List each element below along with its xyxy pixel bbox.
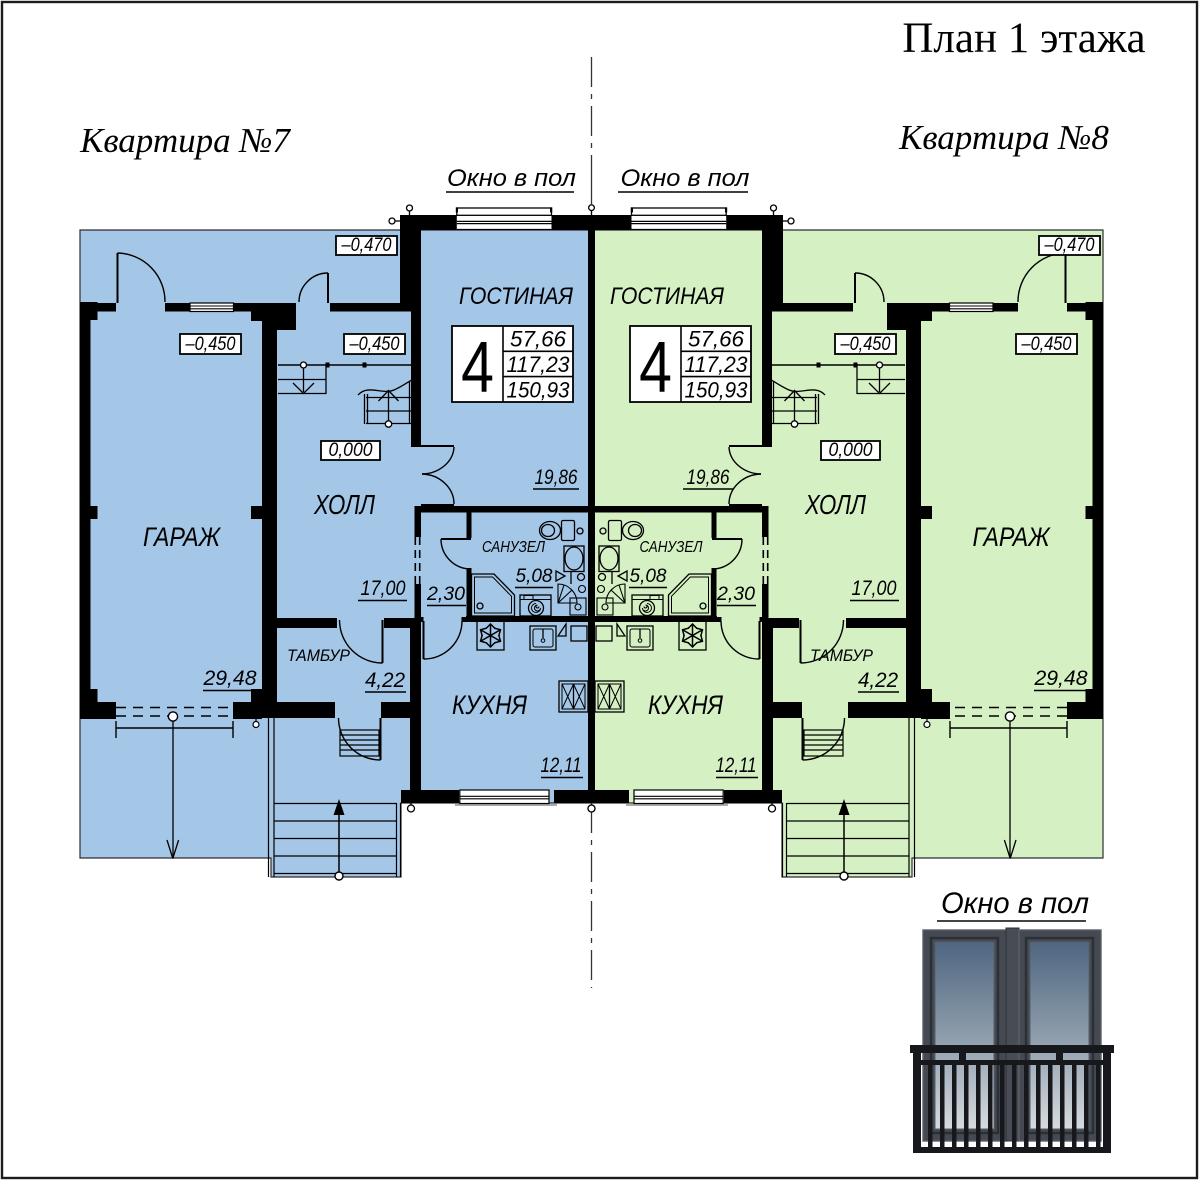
- svg-text:0,000: 0,000: [329, 440, 373, 461]
- svg-text:–0,450: –0,450: [840, 334, 891, 355]
- svg-text:Квартира №8: Квартира №8: [898, 118, 1109, 157]
- svg-text:–0,450: –0,450: [185, 334, 236, 355]
- svg-text:–0,450: –0,450: [349, 334, 400, 355]
- svg-text:САНУЗЕЛ: САНУЗЕЛ: [482, 539, 545, 556]
- svg-text:–0,470: –0,470: [341, 235, 392, 256]
- svg-text:План 1 этажа: План 1 этажа: [902, 15, 1145, 62]
- svg-text:57,66: 57,66: [510, 327, 567, 352]
- svg-text:ГАРАЖ: ГАРАЖ: [973, 522, 1051, 552]
- svg-text:ГАРАЖ: ГАРАЖ: [143, 522, 221, 552]
- svg-text:КУХНЯ: КУХНЯ: [452, 690, 528, 720]
- svg-text:4: 4: [639, 326, 672, 407]
- svg-text:ХОЛЛ: ХОЛЛ: [804, 489, 866, 520]
- svg-text:ТАМБУР: ТАМБУР: [287, 647, 350, 665]
- svg-text:4: 4: [461, 326, 494, 407]
- svg-text:САНУЗЕЛ: САНУЗЕЛ: [640, 539, 703, 556]
- svg-text:0,000: 0,000: [829, 440, 873, 461]
- svg-text:КУХНЯ: КУХНЯ: [648, 690, 724, 720]
- svg-text:2,30: 2,30: [716, 583, 755, 605]
- svg-text:Окно в пол: Окно в пол: [447, 165, 576, 192]
- svg-text:5,08: 5,08: [630, 565, 667, 587]
- svg-text:2,30: 2,30: [426, 583, 465, 605]
- svg-text:117,23: 117,23: [507, 352, 571, 377]
- svg-text:Окно в пол: Окно в пол: [621, 165, 750, 192]
- svg-text:4,22: 4,22: [858, 669, 898, 692]
- svg-text:29,48: 29,48: [202, 667, 256, 690]
- svg-text:17,00: 17,00: [361, 577, 406, 600]
- svg-text:150,93: 150,93: [685, 378, 749, 403]
- svg-text:Окно в пол: Окно в пол: [941, 887, 1089, 920]
- svg-text:12,11: 12,11: [716, 754, 757, 777]
- svg-text:ХОЛЛ: ХОЛЛ: [313, 489, 375, 520]
- svg-text:19,86: 19,86: [687, 466, 730, 489]
- svg-text:12,11: 12,11: [541, 754, 582, 777]
- svg-text:4,22: 4,22: [365, 669, 405, 692]
- svg-text:57,66: 57,66: [688, 327, 745, 352]
- svg-text:ГОСТИНАЯ: ГОСТИНАЯ: [610, 283, 724, 310]
- svg-text:ГОСТИНАЯ: ГОСТИНАЯ: [459, 283, 573, 310]
- svg-text:–0,470: –0,470: [1044, 235, 1095, 256]
- svg-text:29,48: 29,48: [1033, 667, 1087, 690]
- svg-text:5,08: 5,08: [516, 565, 553, 587]
- svg-text:ТАМБУР: ТАМБУР: [810, 647, 873, 665]
- svg-text:117,23: 117,23: [685, 352, 749, 377]
- svg-text:Квартира №7: Квартира №7: [79, 121, 291, 160]
- svg-text:–0,450: –0,450: [1021, 334, 1072, 355]
- svg-text:150,93: 150,93: [507, 378, 571, 403]
- svg-text:19,86: 19,86: [535, 466, 578, 489]
- svg-text:17,00: 17,00: [852, 577, 897, 600]
